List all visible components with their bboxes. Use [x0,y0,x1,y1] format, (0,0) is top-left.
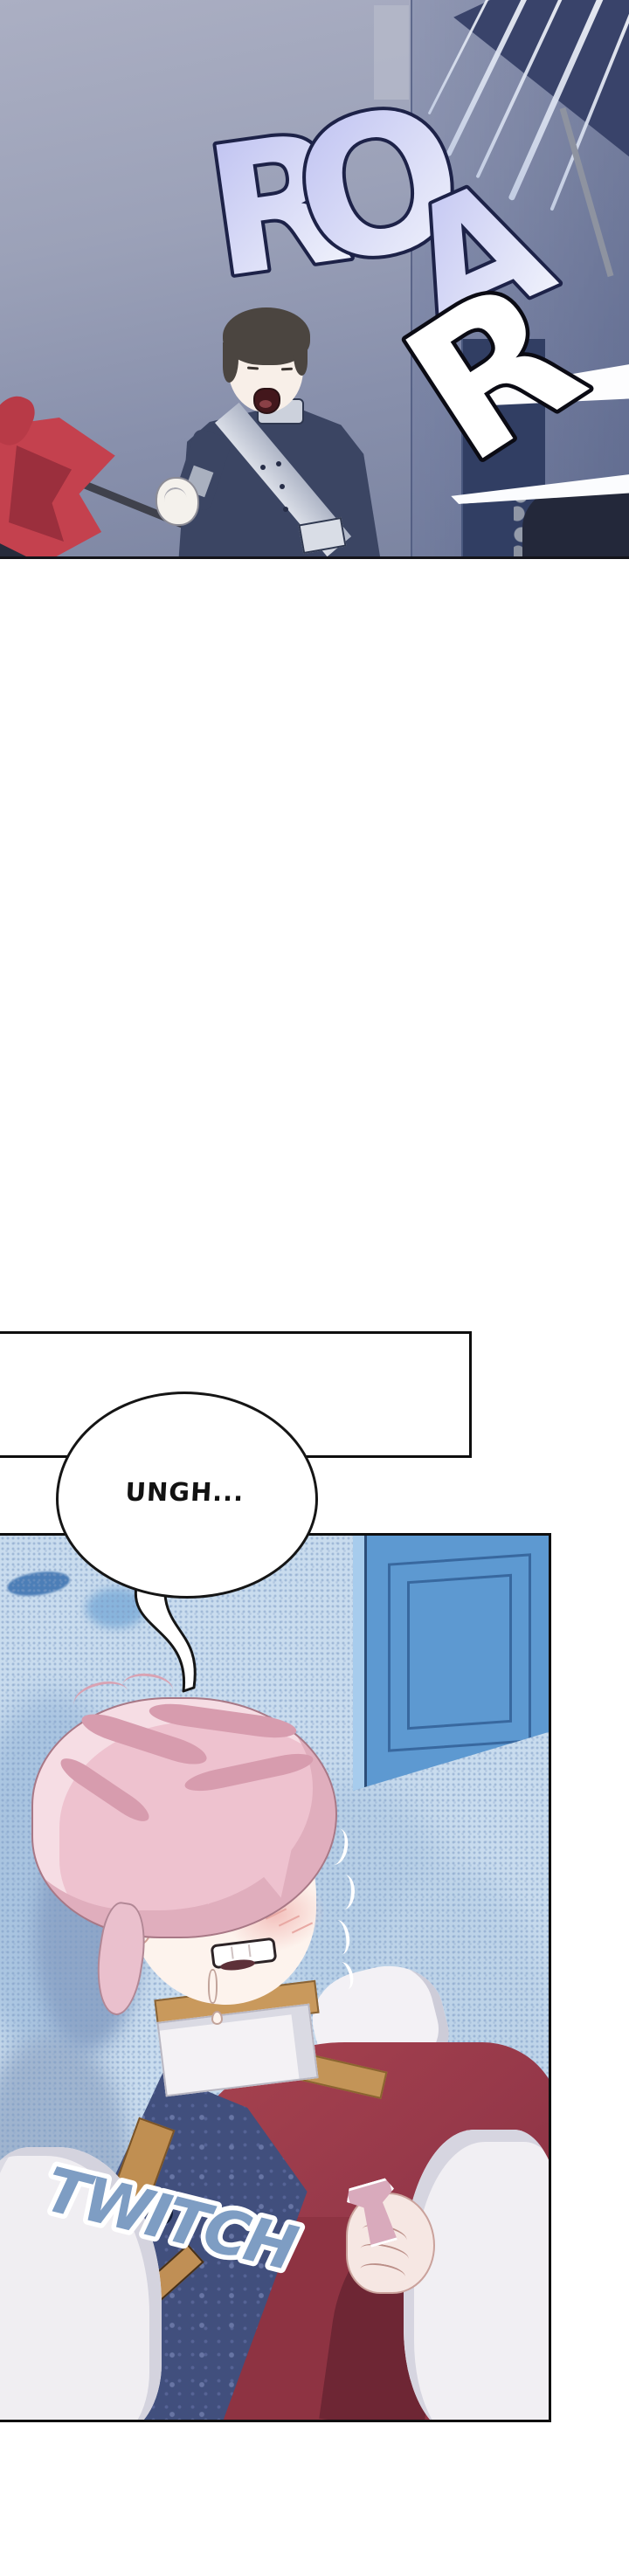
uniform-button [283,507,288,512]
panel-battle-roar: R O A R [0,0,629,559]
dialogue-text: UNGH... [81,1477,288,1507]
uniform-button [276,461,281,466]
soldier-hair-side [294,341,308,376]
saliva-droplet [211,2011,223,2025]
vest-button [147,2200,173,2226]
uniform-button [280,484,285,489]
uniform-button [260,465,266,470]
saliva-drip [208,1969,218,2004]
soldier-tongue [259,400,272,408]
wall-plate [374,5,409,100]
roar-letter-1: R [195,93,360,319]
white-sleeve-right [404,2130,551,2422]
door-molding-inner [407,1574,512,1730]
webtoon-page: R O A R [0,0,629,2576]
door-edge-strip [353,1536,364,1791]
door-edge-line [364,1536,367,1791]
panel-collapsed-boy: TWITCH [0,1533,551,2422]
